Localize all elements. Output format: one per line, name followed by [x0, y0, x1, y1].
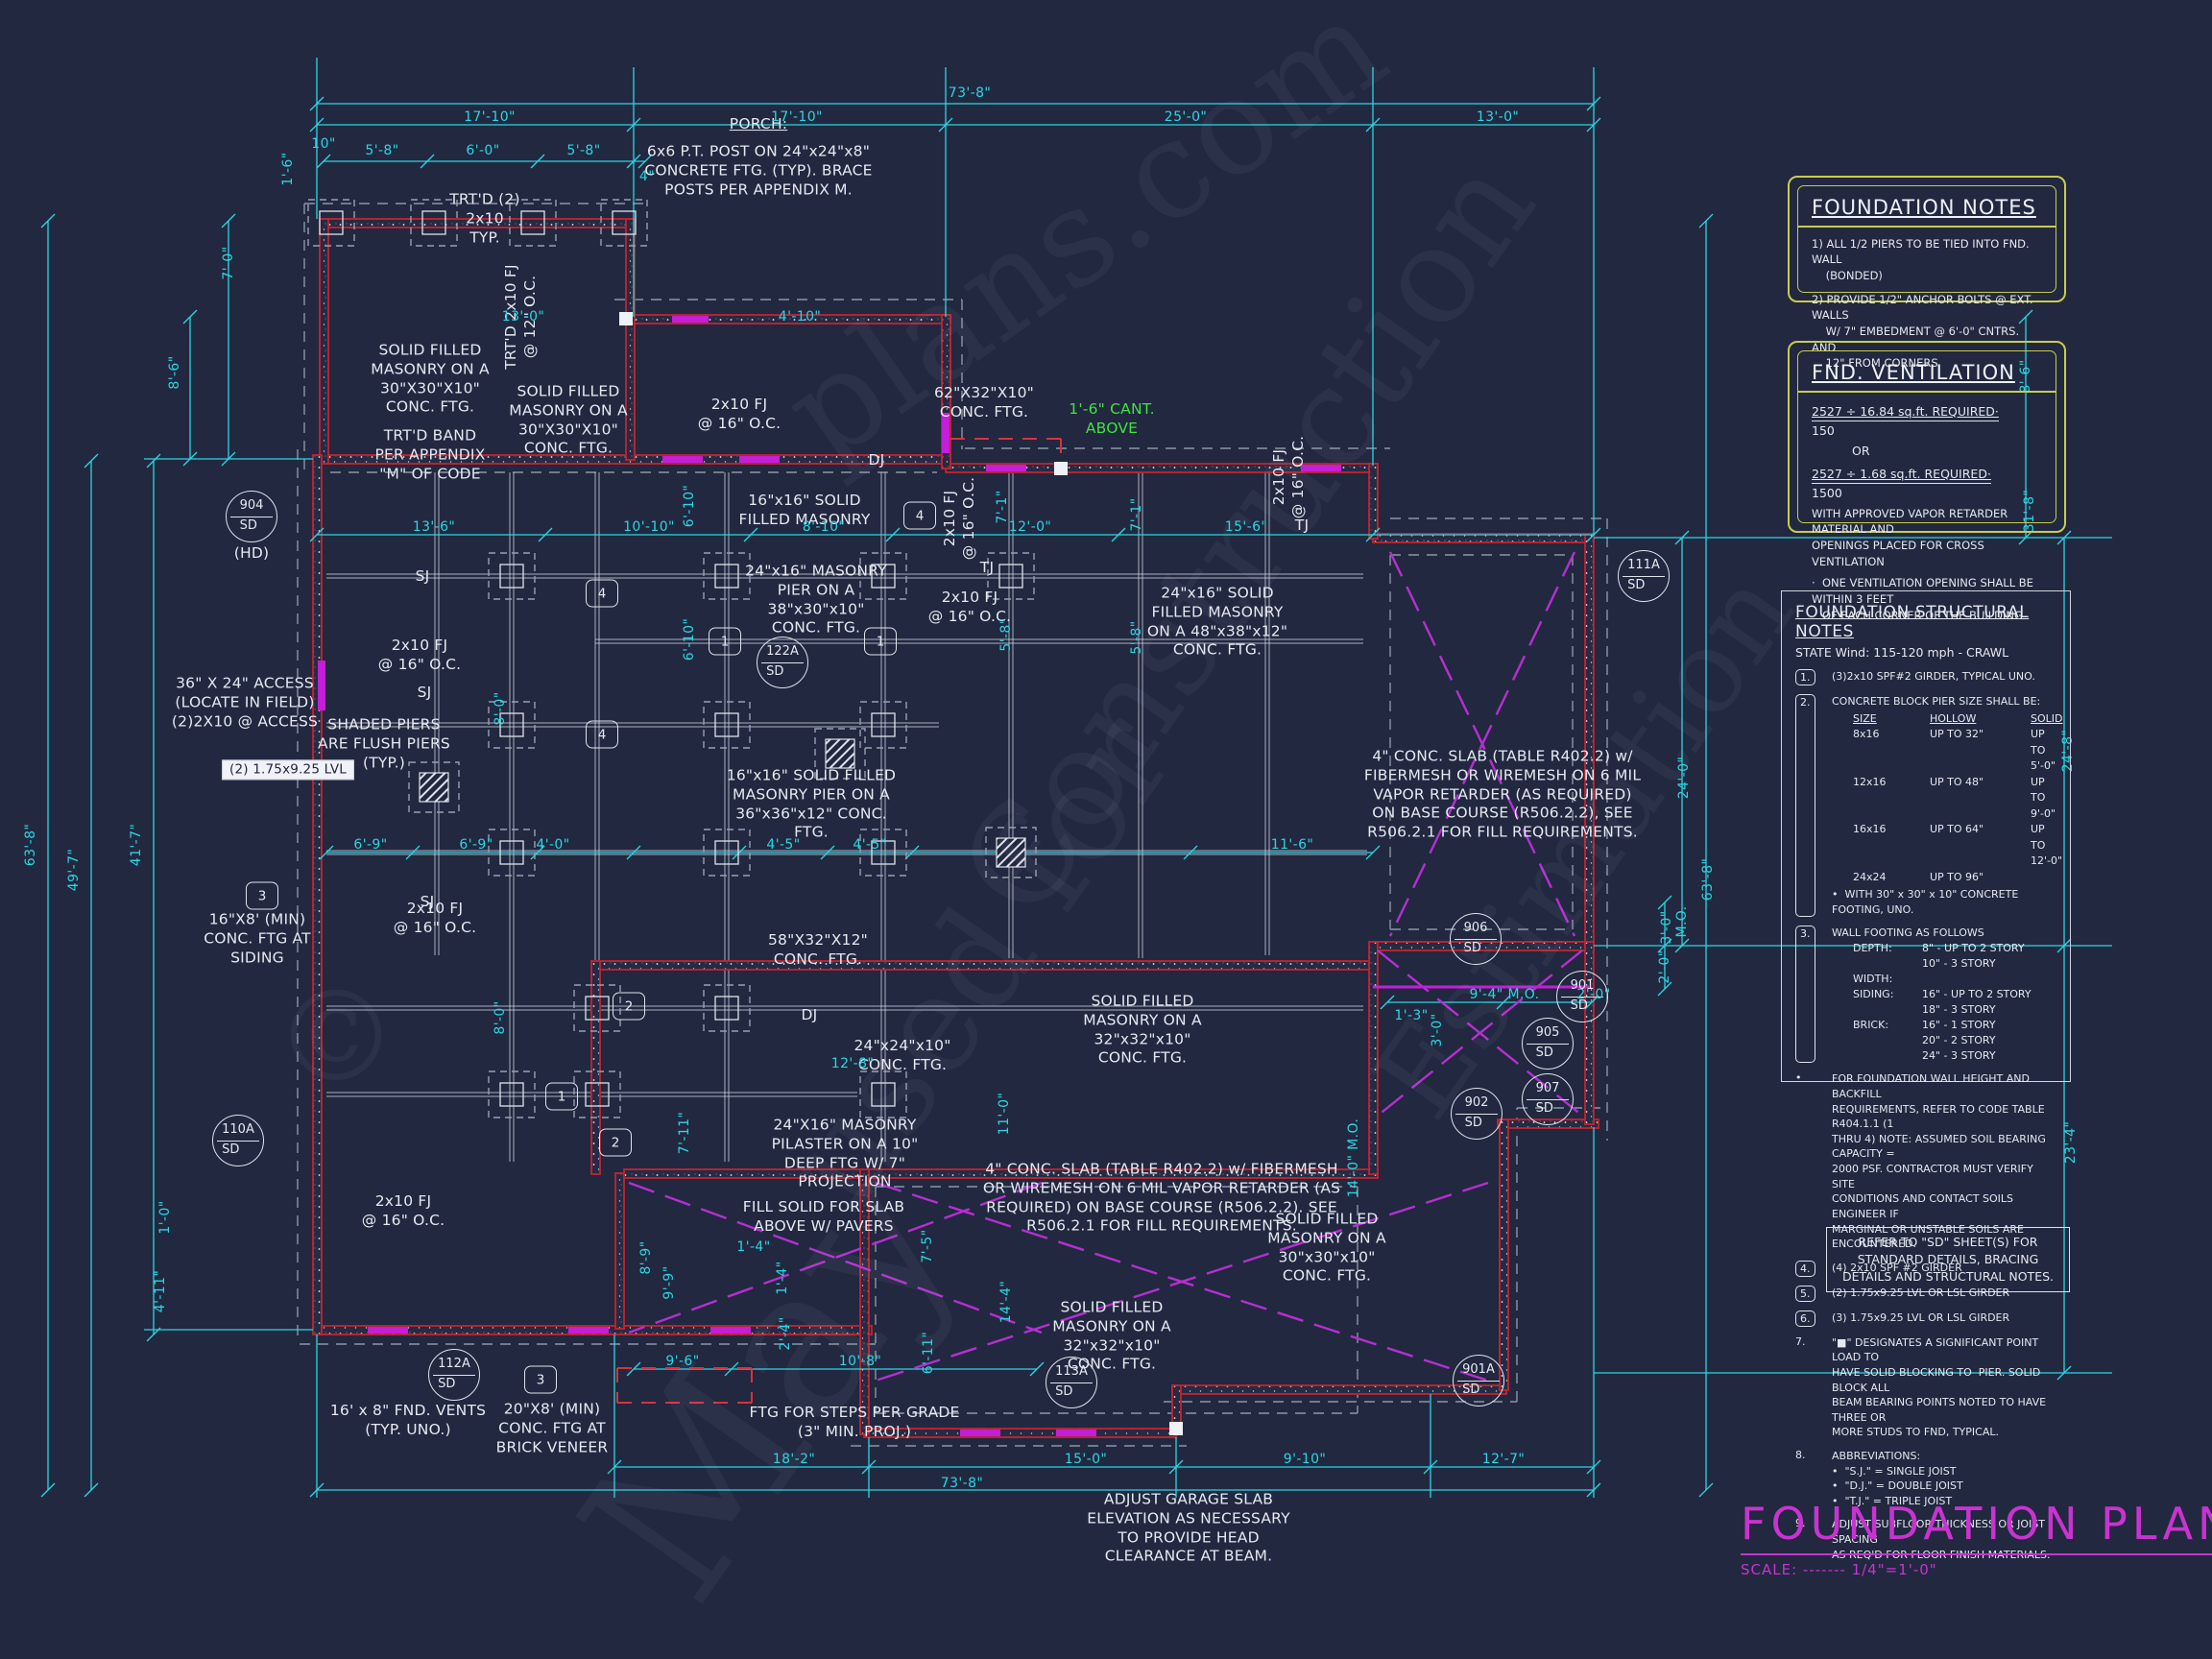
key-hexagon: 4 — [586, 580, 618, 608]
dimension-label: 11'-6" — [1271, 837, 1313, 853]
dimension-label: 12'-8" — [831, 1056, 874, 1071]
dimension-label: 4'-0" — [536, 837, 569, 853]
key-hexagon: 1 — [545, 1083, 578, 1111]
ventilation-vapor-note: WITH APPROVED VAPOR RETARDER MATERIAL AN… — [1812, 506, 2042, 570]
dimension-label: 7'-1" — [1129, 497, 1144, 531]
plan-annotation: 24"X16" MASONRY PILASTER ON A 10" DEEP F… — [772, 1116, 919, 1191]
sd-reference-box: REFER TO "SD" SHEET(S) FOR STANDARD DETA… — [1826, 1227, 2070, 1292]
plan-annotation: SJ — [421, 893, 435, 912]
plan-annotation: FTG FOR STEPS PER GRADE (3" MIN. PROJ.) — [750, 1404, 960, 1442]
plan-annotation: 24"x16" MASONRY PIER ON A 38"x30"x10" CO… — [745, 562, 887, 637]
structural-note-text: WALL FOOTING AS FOLLOWSDEPTH:8" - UP TO … — [1832, 926, 2056, 1063]
dimension-label: 11'-0" — [997, 1093, 1012, 1135]
dimension-label: 6'-0" — [466, 143, 499, 158]
plan-annotation: FILL SOLID FOR SLAB ABOVE W/ PAVERS — [743, 1198, 904, 1237]
dimension-label: 1'-0" — [157, 1200, 173, 1234]
plan-annotation: 2x10 FJ @ 16" O.C. — [394, 900, 476, 938]
structural-notes-subtitle: STATE Wind: 115-120 mph - CRAWL — [1795, 645, 2056, 660]
structural-note-key: 5. — [1795, 1286, 1815, 1302]
plan-annotation: SJ — [418, 684, 432, 703]
key-hexagon: 3 — [246, 882, 278, 910]
sheet-scale: SCALE: ------- 1/4"=1'-0" — [1741, 1561, 2212, 1578]
fnd-ventilation-box: FND. VENTILATION 2527 ÷ 16.84 sq.ft. REQ… — [1788, 341, 2066, 533]
pier-size-table: SIZEHOLLOWSOLID8x16UP TO 32"UP TO 5'-0"1… — [1853, 711, 2062, 886]
dimension-label: 17'-10" — [771, 109, 823, 125]
foundation-plan-sheet: ©plans.comConstructionused forMayEstimat… — [0, 0, 2212, 1659]
structural-note-item: 1.(3)2x10 SPF#2 GIRDER, TYPICAL UNO. — [1795, 669, 2056, 685]
dimension-label: 9'-9" — [661, 1265, 677, 1299]
dimension-label: 5'-8" — [365, 143, 398, 158]
dimension-label: 25'-0" — [1165, 109, 1207, 125]
dimension-label: 73'-8" — [949, 85, 991, 101]
dimension-label: 8'-10" — [803, 519, 845, 535]
dimension-label: 6'-9" — [353, 837, 387, 853]
structural-note-key: 7. — [1795, 1335, 1806, 1440]
dimension-label: 12'-0" — [1009, 519, 1051, 535]
dimension-label: 9'-4" M.O. — [1469, 987, 1539, 1002]
dimension-label: 15'-6" — [1225, 519, 1267, 535]
dimension-label: 10'-10" — [623, 519, 675, 535]
plan-annotation: 62"X32"X10" CONC. FTG. — [934, 384, 1034, 422]
dimension-label: 7'-5" — [920, 1229, 935, 1262]
ventilation-or: OR — [1852, 444, 2042, 458]
key-hexagon: 2 — [599, 1129, 632, 1157]
plan-annotation: TJ — [1295, 517, 1309, 536]
dimension-label: 2'-0" — [1576, 987, 1610, 1002]
dimension-label: 1'-4" — [736, 1239, 770, 1255]
foundation-note-item: 1) ALL 1/2 PIERS TO BE TIED INTO FND. WA… — [1812, 236, 2042, 284]
dimension-label: 5'-8" — [566, 143, 600, 158]
detail-bubble: 111A SD — [1618, 550, 1670, 602]
dimension-label: 14'-4" — [998, 1281, 1014, 1323]
structural-notes-body: 1.(3)2x10 SPF#2 GIRDER, TYPICAL UNO.2.CO… — [1795, 669, 2056, 1562]
dimension-label: 5'-8" — [1129, 620, 1144, 654]
key-hexagon: 1 — [709, 628, 741, 656]
dimension-label: 2'-4" — [778, 1316, 793, 1350]
dimension-label: 41'-7" — [129, 824, 144, 866]
plan-annotation: 2x10 FJ @ 16" O.C. — [1270, 436, 1309, 518]
key-hexagon: 3 — [524, 1366, 557, 1394]
dimension-label: 7'-11" — [677, 1112, 692, 1154]
dimension-label: 2'-0" — [1657, 950, 1672, 983]
plan-annotation: SOLID FILLED MASONRY ON A 30"X30"X10" CO… — [509, 382, 628, 458]
plan-annotation: 2x10 FJ @ 16" O.C. — [698, 396, 781, 434]
dimension-label: 1'-6" — [280, 152, 296, 185]
plan-annotation: DJ — [802, 1006, 818, 1025]
plan-annotation: 2x10 FJ @ 16" O.C. — [378, 637, 461, 675]
plan-annotation: TRT'D (2) 2x10 TYP. — [449, 190, 519, 247]
plan-annotation: 16"X8' (MIN) CONC. FTG AT SIDING — [204, 910, 311, 967]
ventilation-formula-1-denominator: 150 — [1812, 423, 2042, 438]
dimension-label: 17'-10" — [464, 109, 516, 125]
detail-bubble: 904 SD — [226, 491, 277, 542]
detail-bubble: 113A SD — [1046, 1357, 1097, 1408]
plan-annotation: TJ — [980, 559, 994, 578]
dimension-label: 6'-9" — [459, 837, 493, 853]
plan-annotation: 1'-6" CANT. ABOVE — [1069, 400, 1154, 439]
dimension-label: 10" — [311, 136, 335, 152]
dimension-label: 63'-8" — [23, 824, 38, 866]
dimension-label: 8'-6" — [167, 355, 182, 389]
dimension-label: 7'-0" — [221, 246, 236, 279]
plan-annotation: 6x6 P.T. POST ON 24"x24"x8" CONCRETE FTG… — [644, 142, 872, 199]
structural-note-item: 7."■" DESIGNATES A SIGNIFICANT POINT LOA… — [1795, 1335, 2056, 1440]
dimension-label: 6'-10" — [682, 485, 697, 527]
ventilation-formula-1: 2527 ÷ 16.84 sq.ft. REQUIRED· — [1812, 404, 1999, 421]
detail-bubble: 906 SD — [1450, 913, 1502, 965]
plan-annotation: DJ — [869, 451, 885, 470]
dimension-label: 7'-1" — [995, 490, 1010, 523]
plan-annotation: 4" CONC. SLAB (TABLE R402.2) w/ FIBERMES… — [1364, 747, 1641, 842]
dimension-label: 63'-8" — [1700, 858, 1716, 901]
dimension-label: 6'-10" — [682, 618, 697, 661]
foundation-notes-title: FOUNDATION NOTES — [1812, 196, 2042, 219]
plan-annotation: 36" X 24" ACCESS (LOCATE IN FIELD) (2)2X… — [172, 674, 318, 731]
dimension-label: 1'-4" — [775, 1261, 790, 1294]
structural-note-item: 3.WALL FOOTING AS FOLLOWSDEPTH:8" - UP T… — [1795, 926, 2056, 1063]
structural-note-key: 6. — [1795, 1310, 1815, 1327]
detail-bubble: 122A SD — [757, 637, 808, 688]
dimension-label: 4'-5" — [766, 837, 800, 853]
divider — [1798, 226, 2056, 228]
dimension-label: 23'-4" — [2063, 1121, 2079, 1164]
structural-note-text: (3)2x10 SPF#2 GIRDER, TYPICAL UNO. — [1832, 669, 2056, 685]
dimension-label: 5'-8" — [998, 617, 1014, 651]
plan-annotation: SOLID FILLED MASONRY ON A 30"X30"X10" CO… — [371, 341, 490, 417]
dimension-label: 14'-0" M.O. — [1346, 1118, 1361, 1197]
dimension-label: 8'-9" — [638, 1240, 654, 1274]
dimension-label: 9'-6" — [665, 1354, 699, 1369]
title-block: FOUNDATION PLAN SCALE: ------- 1/4"=1'-0… — [1741, 1498, 2212, 1578]
structural-note-item: •FOR FOUNDATION WALL HEIGHT AND BACKFILL… — [1795, 1071, 2056, 1251]
structural-note-key: 4. — [1795, 1261, 1815, 1277]
foundation-notes-box: FOUNDATION NOTES 1) ALL 1/2 PIERS TO BE … — [1788, 176, 2066, 302]
plan-annotation: 20"X8' (MIN) CONC. FTG AT BRICK VENEER — [496, 1400, 609, 1456]
ventilation-formula-2: 2527 ÷ 1.68 sq.ft. REQUIRED· — [1812, 467, 1991, 484]
dimension-label: 18'-2" — [773, 1452, 815, 1467]
dimension-label: 13'-6" — [413, 519, 455, 535]
fnd-ventilation-title: FND. VENTILATION — [1812, 361, 2042, 384]
ventilation-formula-2-denominator: 1500 — [1812, 486, 2042, 500]
structural-note-item: 2.CONCRETE BLOCK PIER SIZE SHALL BE:SIZE… — [1795, 694, 2056, 917]
detail-bubble: 905 SD — [1522, 1018, 1574, 1070]
dimension-label: 13'-0" — [502, 309, 544, 325]
key-hexagon: 4 — [903, 502, 936, 530]
plan-annotation: ADJUST GARAGE SLAB ELEVATION AS NECESSAR… — [1087, 1490, 1290, 1566]
detail-bubble: 901A SD — [1453, 1355, 1504, 1407]
plan-annotation: 58"X32"X12" CONC. FTG. — [768, 931, 868, 970]
dimension-label: 3'-0" — [1430, 1013, 1445, 1046]
structural-note-item: 6.(3) 1.75x9.25 LVL OR LSL GIRDER — [1795, 1310, 2056, 1327]
plan-annotation: (HD) — [234, 544, 270, 564]
dimension-label: 8'-0" — [493, 691, 508, 725]
sheet-title: FOUNDATION PLAN — [1741, 1498, 2212, 1555]
dimension-label: 12'-7" — [1482, 1452, 1525, 1467]
dimension-label: M.O. — [1674, 905, 1690, 937]
plan-annotation: TRT'D BAND PER APPENDIX "M" OF CODE — [374, 426, 485, 483]
detail-bubble: 907 SD — [1522, 1073, 1574, 1125]
structural-note-key: 3. — [1795, 926, 1815, 1063]
dimension-label: 3'-0" — [1659, 910, 1674, 944]
structural-note-key: • — [1795, 1071, 1802, 1251]
plan-annotation: 16' x 8" FND. VENTS (TYP. UNO.) — [330, 1402, 486, 1440]
dimension-label: 4'-11" — [153, 1270, 168, 1312]
dimension-label: 4'-10" — [779, 309, 821, 325]
structural-notes-box: FOUNDATION STRUCTURAL NOTES STATE Wind: … — [1781, 590, 2071, 1082]
structural-note-text: FOR FOUNDATION WALL HEIGHT AND BACKFILL … — [1832, 1071, 2056, 1251]
key-hexagon: 1 — [864, 628, 897, 656]
plan-annotation: 2x10 FJ @ 16" O.C. — [941, 477, 979, 560]
key-hexagon: 2 — [613, 993, 645, 1021]
structural-note-text: "■" DESIGNATES A SIGNIFICANT POINT LOAD … — [1832, 1335, 2056, 1440]
plan-annotation: 24"x16" SOLID FILLED MASONRY ON A 48"x38… — [1147, 584, 1287, 660]
detail-bubble: 112A SD — [428, 1349, 480, 1401]
dimension-label: 10'-8" — [839, 1354, 881, 1369]
wall-footing-table: DEPTH:8" - UP TO 2 STORY 10" - 3 STORYWI… — [1853, 941, 2056, 1064]
divider — [1798, 391, 2056, 393]
dimension-label: 73'-8" — [941, 1476, 983, 1491]
dimension-label: 24'-0" — [1676, 757, 1692, 799]
dimension-label: 9'-10" — [1284, 1452, 1326, 1467]
plan-annotation: (2) 1.75x9.25 LVL — [222, 759, 354, 780]
plan-annotation: SOLID FILLED MASONRY ON A 32"x32"x10" CO… — [1083, 992, 1202, 1068]
dimension-label: 15'-0" — [1065, 1452, 1107, 1467]
structural-note-text: CONCRETE BLOCK PIER SIZE SHALL BE:SIZEHO… — [1832, 694, 2062, 917]
dimension-label: 13'-0" — [1477, 109, 1519, 125]
plan-annotation: SOLID FILLED MASONRY ON A 30"x30"x10" CO… — [1267, 1210, 1386, 1286]
dimension-label: 1'-3" — [1394, 1008, 1428, 1023]
detail-bubble: 110A SD — [212, 1115, 264, 1166]
plan-annotation: 2x10 FJ @ 16" O.C. — [362, 1192, 445, 1231]
structural-note-text: (3) 1.75x9.25 LVL OR LSL GIRDER — [1832, 1310, 2056, 1327]
structural-notes-title: FOUNDATION STRUCTURAL NOTES — [1795, 603, 2056, 641]
detail-bubble: 902 SD — [1451, 1088, 1503, 1140]
dimension-label: 4" — [639, 169, 655, 184]
dimension-label: 49'-7" — [66, 849, 82, 891]
structural-note-key: 2. — [1795, 694, 1815, 917]
plan-annotation: SJ — [416, 567, 430, 587]
plan-annotation: 16"x16" SOLID FILLED MASONRY PIER ON A 3… — [727, 766, 896, 842]
structural-note-key: 1. — [1795, 669, 1815, 685]
key-hexagon: 4 — [586, 721, 618, 749]
dimension-label: 4'-5" — [853, 837, 886, 853]
dimension-label: 8'-0" — [493, 1000, 508, 1034]
dimension-label: 6'-11" — [921, 1332, 936, 1374]
